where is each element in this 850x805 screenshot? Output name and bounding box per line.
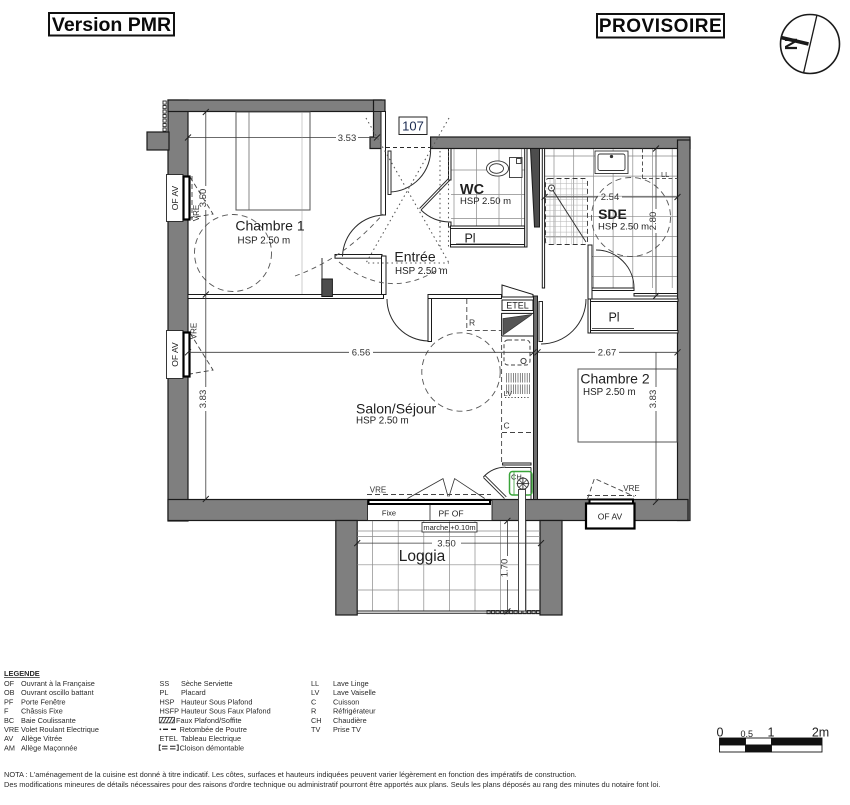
svg-text:2.80: 2.80 [648,212,659,231]
svg-text:OF AV: OF AV [170,342,180,367]
svg-text:Lave Vaiselle: Lave Vaiselle [333,688,376,697]
svg-text:3.83: 3.83 [198,390,209,409]
svg-text:Version PMR: Version PMR [52,14,171,36]
svg-text:PL: PL [160,688,169,697]
svg-text:Placard: Placard [181,688,206,697]
svg-text:Salon/Séjour: Salon/Séjour [356,401,437,417]
svg-text:HSP: HSP [160,697,175,706]
svg-text:HSP 2.50 m: HSP 2.50 m [395,266,448,277]
svg-text:1: 1 [768,726,775,740]
svg-text:PROVISOIRE: PROVISOIRE [599,16,722,37]
svg-text:LV: LV [311,688,320,697]
svg-text:CH: CH [511,473,522,482]
svg-text:0.5: 0.5 [741,729,754,739]
svg-text:ETEL: ETEL [160,734,178,743]
svg-text:LV: LV [504,389,513,398]
svg-text:Faux Plafond/Soffite: Faux Plafond/Soffite [176,716,242,725]
svg-text:NOTA : L'aménagement de la cui: NOTA : L'aménagement de la cuisine est d… [4,770,577,779]
svg-text:VRE: VRE [623,484,639,493]
svg-text:0: 0 [717,726,724,740]
svg-text:LEGENDE: LEGENDE [4,669,40,678]
svg-text:Chaudière: Chaudière [333,716,367,725]
svg-text:F: F [4,707,9,716]
svg-text:Pl: Pl [464,232,475,246]
svg-text:Volet Roulant Electrique: Volet Roulant Electrique [21,725,99,734]
svg-text:OF AV: OF AV [170,185,180,210]
svg-text:LL: LL [311,679,319,688]
svg-text:N: N [781,38,801,51]
svg-text:Hauteur Sous Plafond: Hauteur Sous Plafond [181,697,252,706]
svg-text:OF: OF [4,679,15,688]
svg-text:ETEL: ETEL [506,301,529,311]
svg-text:Fixe: Fixe [382,509,396,518]
svg-text:3.53: 3.53 [338,133,357,144]
svg-text:2m: 2m [812,726,829,740]
svg-text:TV: TV [311,725,320,734]
svg-text:Sèche Serviette: Sèche Serviette [181,679,233,688]
svg-text:3.83: 3.83 [648,390,659,409]
svg-text:Entrée: Entrée [394,249,435,265]
svg-text:Chambre 2: Chambre 2 [580,371,649,387]
svg-text:HSP 2.50 m: HSP 2.50 m [598,222,649,233]
svg-text:Porte Fenêtre: Porte Fenêtre [21,697,66,706]
svg-text:6.56: 6.56 [352,347,371,358]
svg-text:LL: LL [661,170,669,179]
svg-text:3.50: 3.50 [198,189,209,208]
svg-text:Allège Vitrée: Allège Vitrée [21,734,62,743]
svg-text:VRE: VRE [4,725,19,734]
svg-text:marche +0.10m: marche +0.10m [423,523,475,532]
svg-text:Retombée de Poutre: Retombée de Poutre [180,725,247,734]
svg-text:HSP 2.50 m: HSP 2.50 m [460,196,511,207]
svg-text:OF AV: OF AV [598,512,623,522]
svg-text:Baie Coulissante: Baie Coulissante [21,716,76,725]
svg-text:Réfrigérateur: Réfrigérateur [333,707,376,716]
svg-text:Des modifications mineures de: Des modifications mineures de détails né… [4,780,660,789]
svg-text:Loggia: Loggia [399,548,446,565]
svg-text:HSP 2.50 m: HSP 2.50 m [238,236,291,247]
svg-text:OB: OB [4,688,15,697]
svg-text:R: R [311,707,316,716]
svg-text:Ouvrant oscillo battant: Ouvrant oscillo battant [21,688,94,697]
svg-text:107: 107 [402,119,424,134]
svg-text:AV: AV [4,734,13,743]
svg-text:SDE: SDE [598,206,627,222]
svg-text:PF: PF [4,697,14,706]
svg-text:Tableau Electrique: Tableau Electrique [181,734,241,743]
svg-text:VRE: VRE [370,486,386,495]
svg-text:Prise TV: Prise TV [333,725,361,734]
svg-text:Cuisson: Cuisson [333,697,359,706]
svg-text:Châssis Fixe: Châssis Fixe [21,707,63,716]
svg-text:HSP 2.50 m: HSP 2.50 m [583,387,636,398]
svg-text:VRE: VRE [190,323,199,339]
svg-text:2.67: 2.67 [598,347,617,358]
svg-text:C: C [311,697,316,706]
svg-text:PF OF: PF OF [438,509,463,519]
svg-text:1.70: 1.70 [499,559,510,578]
svg-text:AM: AM [4,743,15,752]
svg-text:HSP 2.50 m: HSP 2.50 m [356,416,409,427]
svg-text:Cloison démontable: Cloison démontable [180,743,245,752]
svg-text:BC: BC [4,716,14,725]
svg-text:Allège Maçonnée: Allège Maçonnée [21,743,77,752]
svg-text:Lave Linge: Lave Linge [333,679,369,688]
svg-text:Hauteur Sous Faux Plafond: Hauteur Sous Faux Plafond [181,707,271,716]
svg-text:2.54: 2.54 [601,192,620,203]
svg-text:Pl: Pl [608,311,619,325]
svg-text:R: R [469,318,475,328]
svg-text:Chambre 1: Chambre 1 [235,218,304,234]
svg-text:CH: CH [311,716,322,725]
svg-text:Ouvrant à la Française: Ouvrant à la Française [21,679,95,688]
svg-text:SS: SS [160,679,170,688]
svg-text:HSFP: HSFP [160,707,180,716]
svg-text:C: C [504,421,510,431]
